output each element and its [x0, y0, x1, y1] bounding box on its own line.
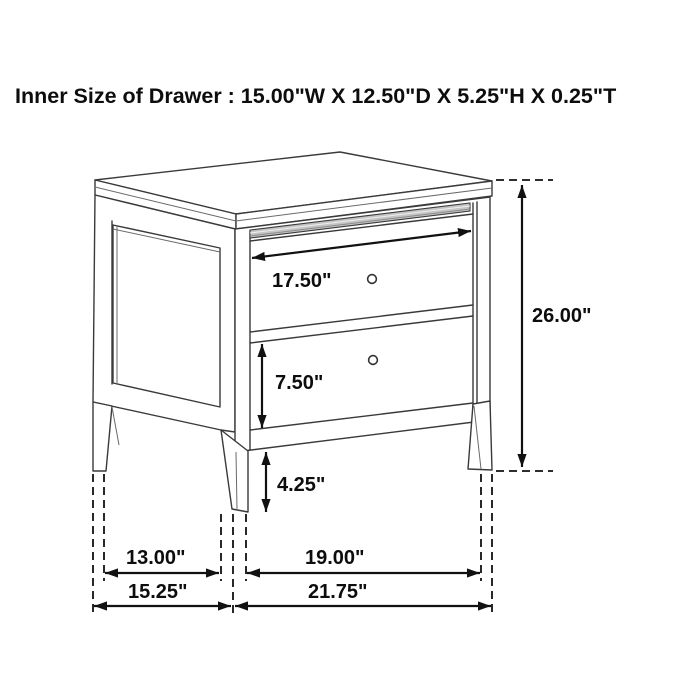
front-face [235, 197, 490, 452]
dim-label-overall-height: 26.00" [532, 305, 592, 327]
side-panel [93, 195, 235, 432]
dim-label-drawer-height: 7.50" [275, 372, 323, 394]
side-recessed-panel [113, 225, 220, 407]
diagram-canvas: Inner Size of Drawer : 15.00"W X 12.50"D… [0, 0, 700, 700]
dim-label-leg-height: 4.25" [277, 474, 325, 496]
dim-label-side-leg-gap: 13.00" [126, 547, 186, 569]
drawer1-knob [368, 275, 377, 284]
dim-label-overall-depth: 15.25" [128, 581, 188, 603]
nightstand-diagram: 17.50" 26.00" 7.50" 4.25" 13.00" 19.00" … [0, 0, 700, 700]
drawer2-knob [369, 356, 378, 365]
back-left-leg-taper-line [112, 407, 119, 445]
back-left-leg [93, 402, 112, 471]
dim-label-front-leg-gap: 19.00" [305, 547, 365, 569]
dim-label-overall-width: 21.75" [308, 581, 368, 603]
dim-label-drawer-width: 17.50" [272, 270, 332, 292]
